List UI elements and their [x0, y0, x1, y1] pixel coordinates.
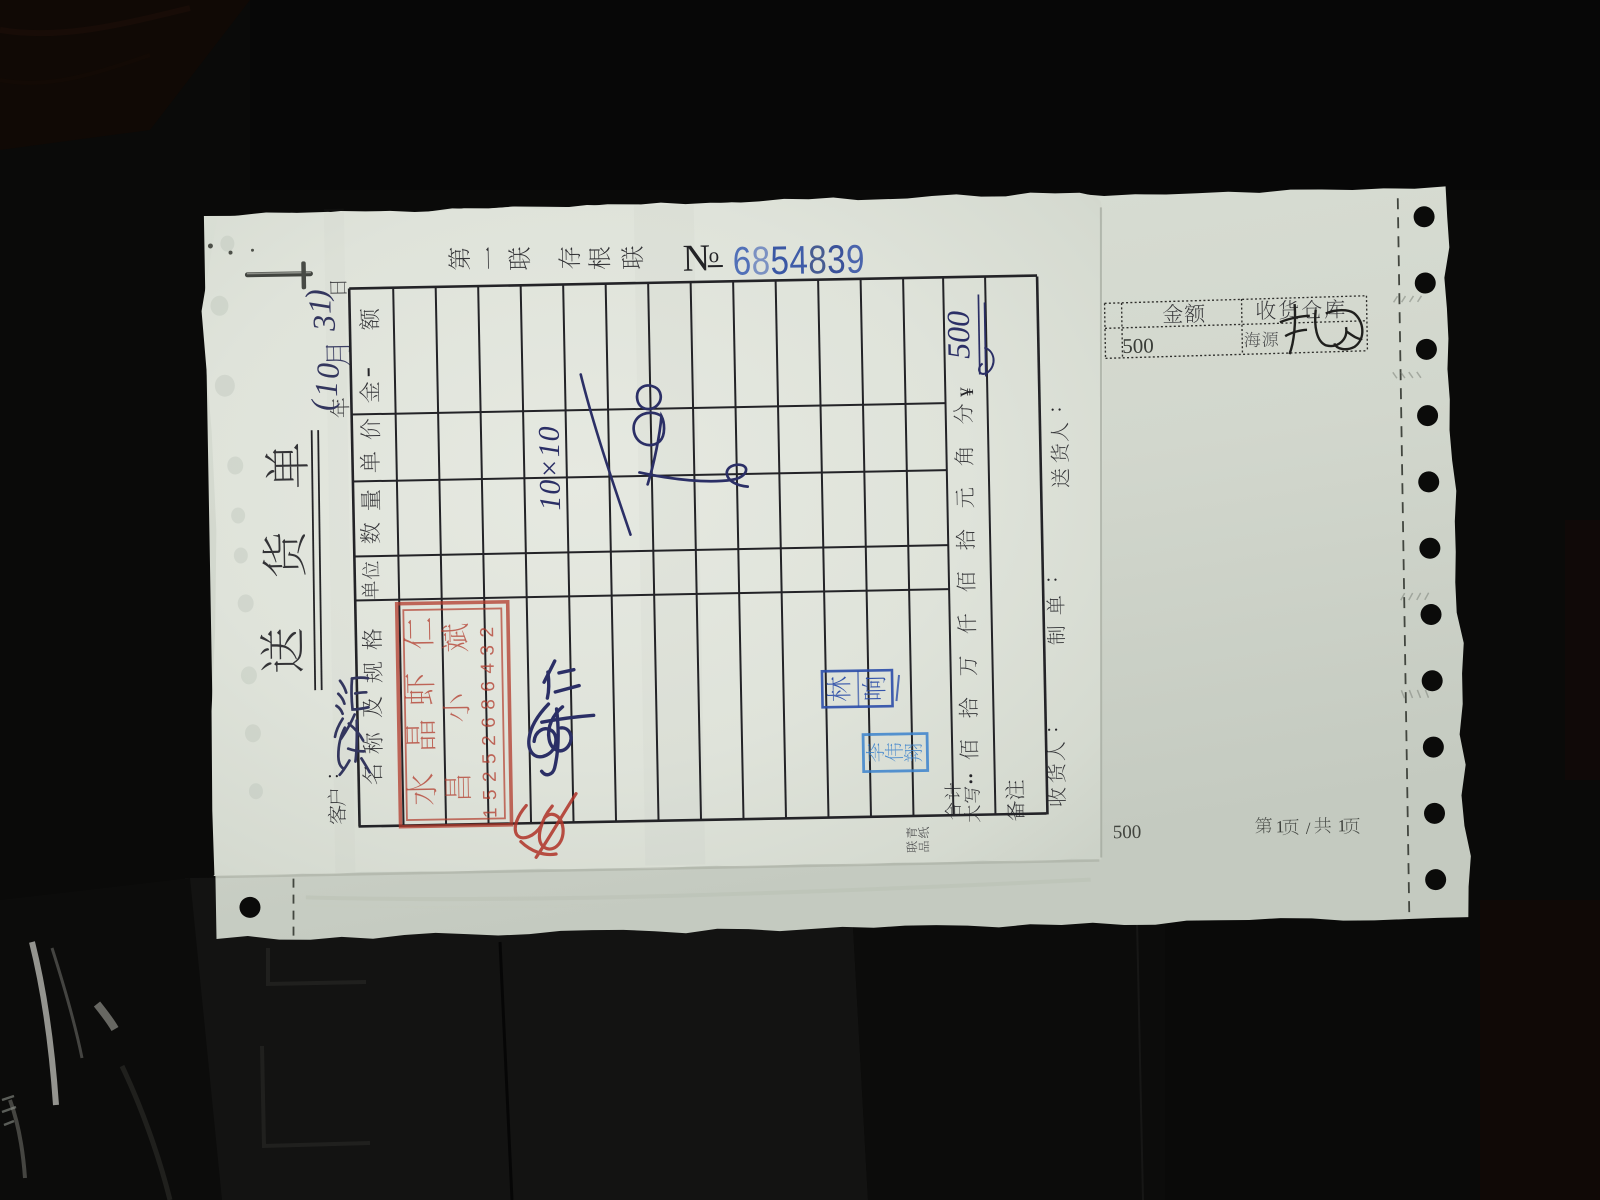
svg-text::: :: [1041, 727, 1062, 733]
svg-text::: :: [1040, 577, 1061, 583]
svg-text:/: /: [1306, 819, 1311, 838]
svg-text:¥: ¥: [957, 387, 978, 397]
svg-text:o: o: [708, 243, 719, 267]
svg-text:500: 500: [940, 311, 977, 360]
svg-text:): ): [298, 289, 334, 302]
svg-text:N: N: [682, 237, 710, 279]
svg-text:3: 3: [306, 315, 342, 333]
svg-text:500: 500: [1122, 333, 1154, 358]
svg-text:1: 1: [308, 381, 344, 398]
svg-text:10×10: 10×10: [533, 425, 567, 511]
svg-text:15252686432: 15252686432: [477, 619, 501, 818]
svg-text:500: 500: [1113, 822, 1142, 843]
svg-text:0: 0: [309, 363, 345, 380]
svg-text::: :: [1044, 407, 1065, 413]
svg-text:6854839: 6854839: [732, 237, 865, 284]
